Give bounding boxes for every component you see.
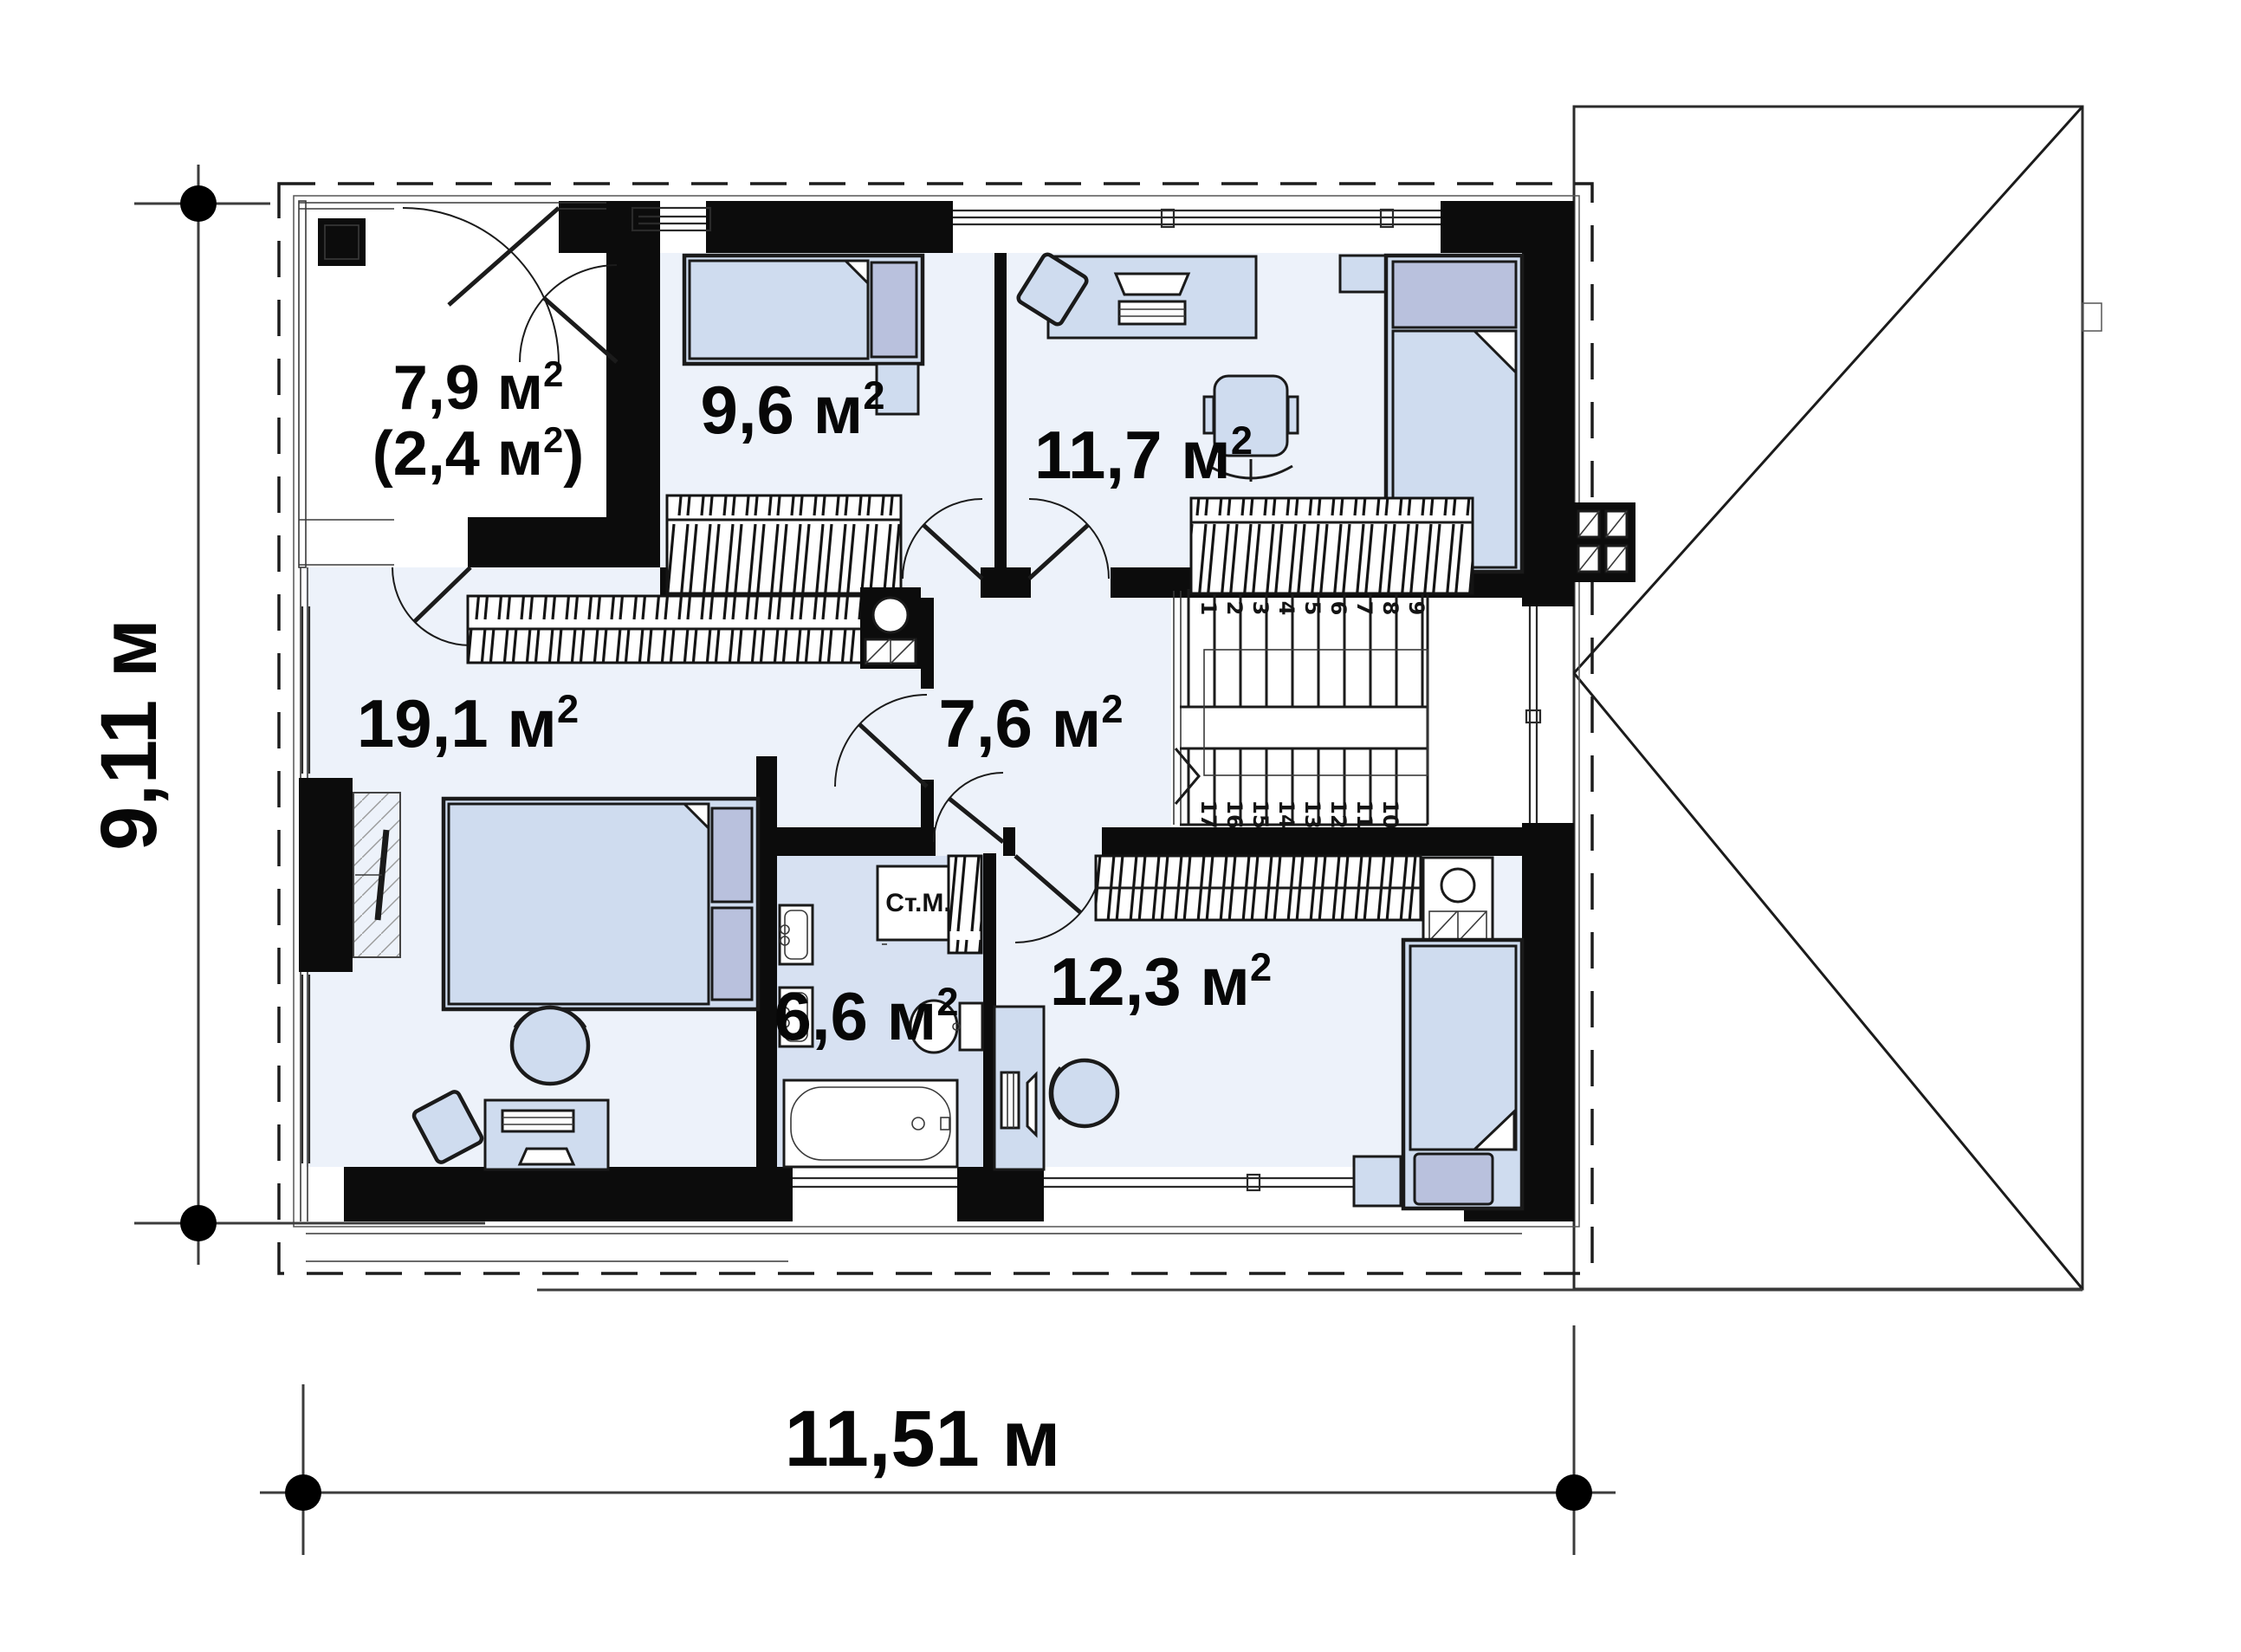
stair-step-number: 14 (1274, 800, 1299, 828)
bed-pillow (1393, 262, 1516, 327)
bed-pillow-2 (712, 908, 752, 1000)
wall-hall-left-lower (921, 780, 934, 827)
stair-step-number: 16 (1222, 800, 1247, 828)
wall-hall-left-upper (921, 598, 934, 689)
stair-step-number: 8 (1378, 601, 1402, 616)
bed-pillow (1415, 1154, 1493, 1204)
nightstand (1340, 256, 1386, 292)
wall-bottom-1 (344, 1167, 793, 1221)
wardrobe-bedroom-1 (667, 496, 901, 593)
window-bathroom-bottom (793, 1178, 957, 1187)
wardrobe-bedroom-3 (1096, 856, 1421, 920)
label-hallway: 7,6 м2 (939, 685, 1124, 761)
boiler-unit (860, 587, 921, 669)
stair-step-number: 3 (1248, 601, 1273, 616)
chimney-external (1570, 502, 1635, 582)
stair-step-number: 13 (1300, 800, 1325, 828)
armchair (512, 1007, 588, 1084)
stair-step-number: 11 (1352, 800, 1376, 828)
keyboard-icon (1001, 1072, 1019, 1128)
wardrobe-bedroom-2 (1191, 498, 1473, 593)
towel-rack (949, 856, 981, 953)
shelf-unit (1423, 858, 1493, 949)
stair-step-number: 5 (1300, 601, 1325, 616)
floor-stairwell (1171, 598, 1522, 827)
wall-hall-bottom-2 (1102, 827, 1522, 856)
wall-top-2 (706, 201, 953, 253)
desk-with-computer (485, 1100, 608, 1169)
floor-plan-drawing: 123456789 1716151413121110 (0, 0, 2241, 1652)
dimension-width-label: 11,51 м (785, 1395, 1061, 1483)
bed-pillow-1 (712, 808, 752, 902)
bed-single-blanket (690, 261, 868, 359)
sink-1 (780, 905, 813, 964)
tv-panel (353, 793, 400, 957)
wall-left-pier (299, 778, 353, 972)
stair-step-number: 9 (1404, 601, 1428, 616)
label-bedroom-3: 12,3 м2 (1050, 943, 1272, 1020)
stair-step-number: 10 (1378, 800, 1402, 828)
window-bedroom2-ribbon (953, 210, 1441, 227)
wall-right-upper (1522, 201, 1574, 606)
label-bedroom-2: 11,7 м2 (1034, 417, 1253, 493)
window-stairs-right (1526, 606, 1540, 823)
wall-hall-bottom-jamb (1003, 827, 1015, 856)
dimension-width: 11,51 м (260, 1325, 1616, 1555)
room-storage (318, 218, 366, 266)
wall-bedroom1-bedroom2 (994, 253, 1007, 567)
wall-bottom-2 (957, 1167, 1044, 1221)
wardrobe-master (468, 596, 862, 663)
monitor-icon (1116, 274, 1189, 295)
stair-step-number: 15 (1248, 800, 1273, 828)
monitor-icon (1027, 1074, 1036, 1135)
wall-storage-bedroom1 (606, 201, 660, 567)
garage-roof-notch (2082, 303, 2102, 331)
keyboard-icon (1119, 301, 1185, 324)
bed-blanket (449, 804, 709, 1004)
dimension-height-label: 9,11 м (85, 619, 173, 851)
label-bedroom-1: 9,6 м2 (701, 372, 885, 448)
bed-single-pillow (871, 262, 916, 357)
wall-hall-top-pier (981, 567, 1031, 598)
stair-step-number: 12 (1326, 800, 1350, 828)
stair-step-number: 7 (1352, 601, 1376, 616)
keyboard-icon (502, 1111, 573, 1131)
garage-roof-outline (1574, 107, 2082, 1289)
stair-step-number: 6 (1326, 601, 1350, 616)
washing-machine-label: Ст.М. (885, 889, 950, 917)
stair-step-number: 17 (1196, 800, 1221, 828)
wall-bathroom-top (777, 827, 936, 856)
wall-right-lower (1522, 823, 1574, 1221)
desk-with-computer (994, 1007, 1044, 1169)
bed-blanket (1410, 946, 1516, 1150)
label-bathroom: 6,6 м2 (774, 978, 959, 1054)
wall-storage-left (299, 201, 306, 567)
nightstand (1354, 1156, 1401, 1206)
bathtub (784, 1080, 957, 1167)
stair-numbers-up: 123456789 (1196, 601, 1428, 616)
stair-step-number: 1 (1196, 601, 1221, 616)
stair-step-number: 2 (1222, 601, 1247, 616)
stair-step-number: 4 (1274, 601, 1299, 616)
wall-storage-bottom (468, 517, 658, 567)
label-storage-line1: 7,9 м2 (393, 353, 564, 423)
bed-double (444, 799, 758, 1009)
bed-single-vertical (1403, 940, 1522, 1208)
label-master-bedroom: 19,1 м2 (357, 685, 579, 761)
office-chair (1050, 1060, 1117, 1126)
monitor-icon (520, 1149, 573, 1164)
floor-plan-sheet: 123456789 1716151413121110 (0, 0, 2241, 1652)
